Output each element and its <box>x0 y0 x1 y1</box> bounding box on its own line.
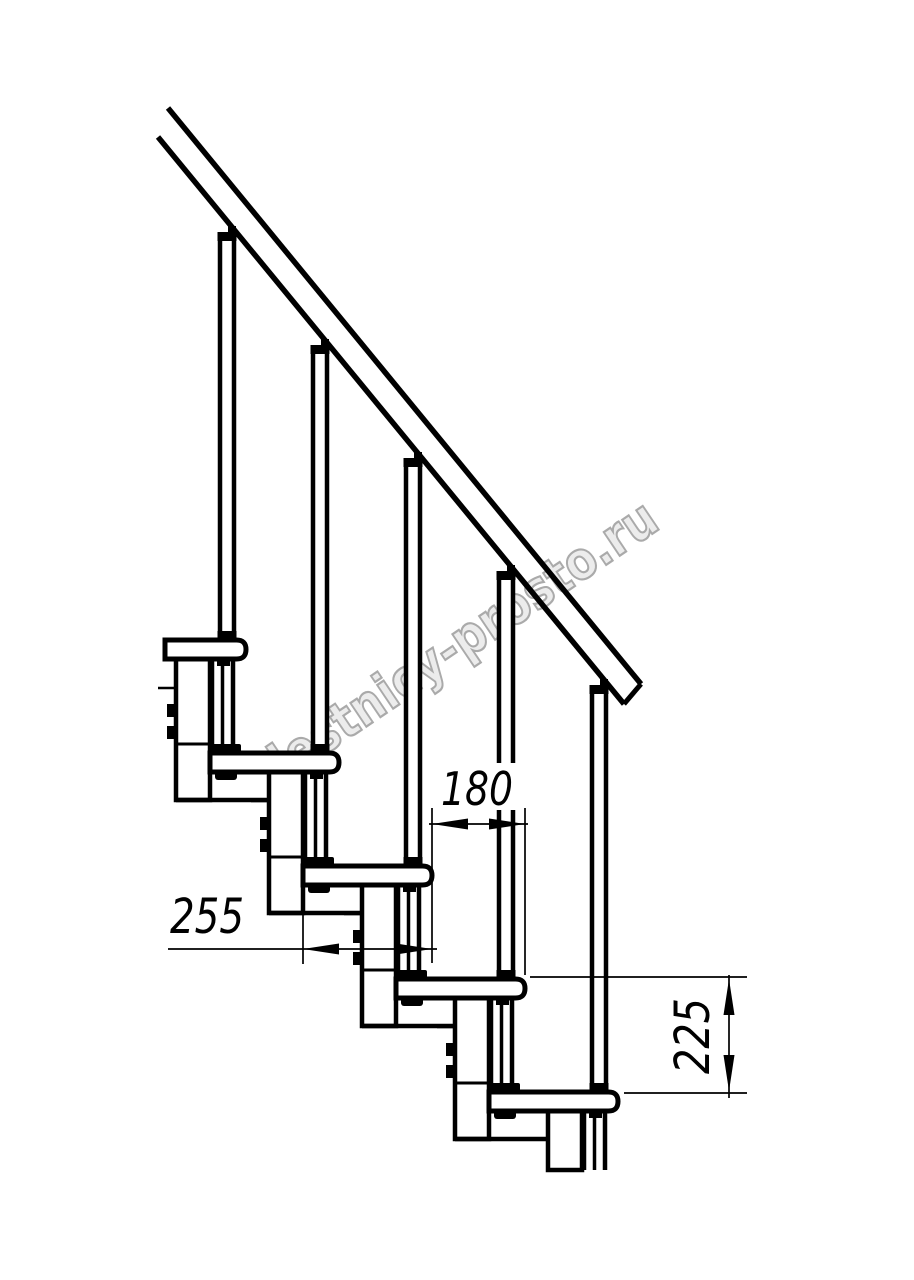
connecting-rod <box>305 771 334 867</box>
tread-bolt <box>215 771 237 780</box>
arrowhead <box>724 1055 735 1091</box>
clamp-tab <box>353 952 362 965</box>
tread-bolt <box>494 1110 516 1119</box>
tread <box>165 640 246 659</box>
dimension-value-180: 180 <box>441 762 513 816</box>
tread <box>303 866 432 885</box>
support-column <box>548 1109 582 1170</box>
arrowhead <box>724 979 735 1015</box>
arrowhead <box>396 944 432 955</box>
connecting-rod <box>584 1110 605 1170</box>
dimension-value-255: 255 <box>170 889 244 945</box>
tread <box>210 753 339 772</box>
connecting-rod <box>212 658 241 754</box>
tread <box>489 1092 618 1111</box>
clamp-tab <box>260 839 269 852</box>
dimension-value-225: 225 <box>665 998 721 1074</box>
baluster <box>404 452 423 867</box>
dimension-step-rise: 225 <box>530 975 747 1098</box>
connecting-rod <box>491 997 520 1093</box>
clamp-tab <box>167 704 176 717</box>
tread-bolt <box>401 997 423 1006</box>
arrowhead <box>303 944 339 955</box>
baluster <box>311 339 330 754</box>
baluster <box>218 226 237 641</box>
tread-bolt <box>308 884 330 893</box>
clamp-tab <box>353 930 362 943</box>
arrowhead <box>432 819 468 830</box>
balusters <box>218 226 609 1093</box>
clamp-tab <box>260 817 269 830</box>
clamp-tab <box>446 1043 455 1056</box>
connecting-rod <box>398 884 427 980</box>
clamp-tab <box>167 726 176 739</box>
staircase-elevation-drawing: lestnicy-prosto.ru <box>0 0 914 1280</box>
baluster <box>590 679 609 1093</box>
tread <box>396 979 525 998</box>
clamp-tab <box>446 1065 455 1078</box>
handrail-end-cap <box>624 684 641 704</box>
